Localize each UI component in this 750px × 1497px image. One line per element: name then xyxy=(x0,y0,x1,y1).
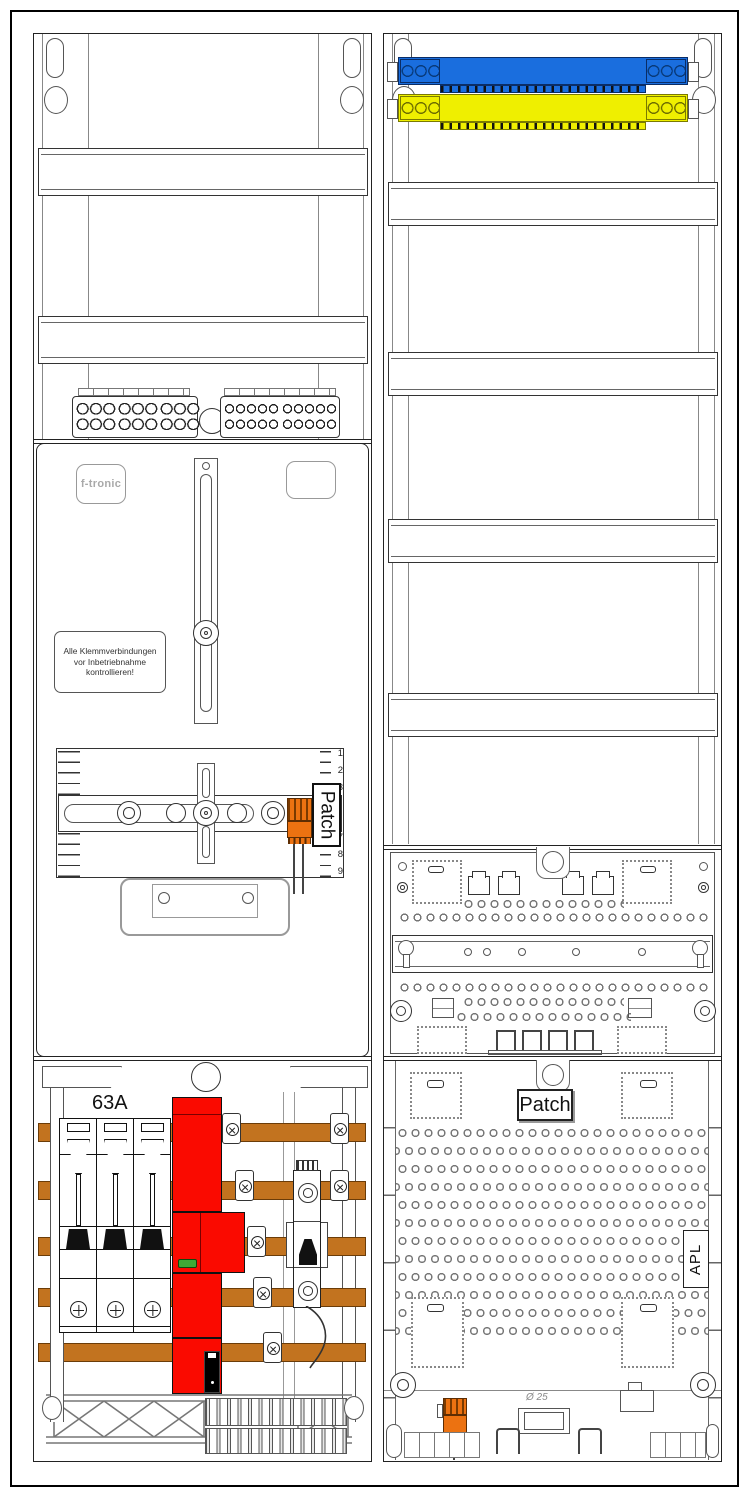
fuse-funnel xyxy=(67,1139,90,1174)
cable-clamp-icon xyxy=(522,1030,542,1050)
fuse-cap-black xyxy=(103,1229,127,1249)
patch-wire xyxy=(293,844,295,894)
mcb-screw-icon xyxy=(298,1281,318,1301)
corner-lock-icon xyxy=(690,1372,716,1398)
breaker-band-line xyxy=(173,1114,221,1115)
adjust-bar-screw-icon xyxy=(193,620,219,646)
panel-hole-icon xyxy=(398,862,407,871)
terminal-row xyxy=(205,1428,347,1454)
bar-line xyxy=(629,1008,651,1009)
left-edge-strip xyxy=(384,1061,396,1460)
terminal-holes-group xyxy=(76,401,116,432)
patch-label-meter: Patch xyxy=(316,791,338,840)
meter-cabinet-drawing: f-tronic Alle Klemmverbindungen vor Inbe… xyxy=(0,0,750,1497)
din-rail xyxy=(388,693,718,737)
brand-badge-label: f-tronic xyxy=(81,478,121,490)
fuse-stem xyxy=(113,1174,118,1226)
mcb-line xyxy=(294,1267,320,1268)
rj45-jack-icon xyxy=(562,876,584,895)
patch-connector-orange xyxy=(287,798,312,821)
fuse-unit xyxy=(59,1118,171,1333)
corner-blob xyxy=(706,1424,719,1458)
fuse-rating-label: 63A xyxy=(92,1092,128,1115)
terminal-holes-group xyxy=(282,401,337,432)
small-bracket xyxy=(620,1390,654,1412)
fuse-screw-icon xyxy=(107,1301,124,1318)
busbar-end-holes xyxy=(646,59,686,83)
terminal-tab-strip xyxy=(224,388,336,396)
din-rail xyxy=(38,148,368,196)
cross-vertical-slot xyxy=(202,826,210,858)
terminal-screw-icon xyxy=(334,1180,347,1193)
blank-badge xyxy=(286,461,336,499)
cable-clamp-icon xyxy=(548,1030,568,1050)
panel-lock-icon xyxy=(694,1000,716,1022)
rail-hole-icon xyxy=(483,948,491,956)
cable-clamp-icon xyxy=(496,1030,516,1050)
cable-clamp-icon xyxy=(574,1030,594,1050)
din-rail xyxy=(388,352,718,396)
right-edge-strip xyxy=(708,1061,721,1460)
rj45-jack-icon xyxy=(468,876,490,895)
adjust-bar-hole-icon xyxy=(202,462,210,470)
terminal-screw-icon xyxy=(267,1342,280,1355)
cross-screw-icon xyxy=(117,801,141,825)
bottom-trim-line xyxy=(384,1390,721,1391)
panel-mid-rail xyxy=(392,935,713,973)
rj45-jack-icon xyxy=(592,876,614,895)
cable-diameter-label: Ø 25 xyxy=(526,1392,548,1403)
mount-slot-icon xyxy=(46,38,64,78)
keyhole-stem xyxy=(697,954,704,968)
busbar-bracket xyxy=(387,62,398,82)
fuse-unit-line xyxy=(60,1249,170,1250)
busbar-terminal xyxy=(263,1332,282,1363)
patch-connector-teeth xyxy=(288,838,311,844)
panel-clip-icon xyxy=(542,851,564,873)
din-rail xyxy=(388,182,718,226)
terminal-screw-icon xyxy=(226,1123,239,1136)
busbar-bracket xyxy=(688,99,699,119)
warning-line-3: kontrollieren! xyxy=(86,667,134,678)
breaker-lever-notch xyxy=(208,1353,216,1358)
foot-hole-icon xyxy=(344,1396,364,1420)
brand-badge: f-tronic xyxy=(76,464,126,504)
terminal-holes-group xyxy=(224,401,279,432)
mcb-lever-black xyxy=(299,1239,317,1265)
cable-entry-icon xyxy=(578,1428,602,1454)
apl-label-box: APL xyxy=(683,1230,709,1288)
ruler-number: 9 xyxy=(331,866,343,877)
fuse-unit-line xyxy=(60,1226,170,1227)
busbar-end-holes xyxy=(400,59,440,83)
corner-brace xyxy=(42,1066,122,1088)
right-post-line xyxy=(318,34,319,440)
corner-brace xyxy=(290,1066,368,1088)
fuse-unit-line xyxy=(60,1278,170,1279)
cable-entry-panel xyxy=(650,1432,706,1458)
ruler-number: 2 xyxy=(331,765,343,776)
left-post-line xyxy=(88,34,89,440)
busbar-teeth xyxy=(440,85,646,93)
fuse-handle-icon xyxy=(141,1123,164,1132)
rail-hole-icon xyxy=(638,948,646,956)
panel-clip-icon xyxy=(542,1064,564,1086)
cross-center-screw-icon xyxy=(193,800,219,826)
patch-wire xyxy=(302,844,304,894)
cable-entry-icon xyxy=(496,1428,520,1454)
fuse-stem xyxy=(76,1174,81,1226)
mcb-line xyxy=(294,1221,320,1222)
fuse-funnel xyxy=(141,1139,164,1174)
panel-clip-icon xyxy=(191,1062,221,1092)
perforation-row xyxy=(455,1012,631,1022)
mcb-top-connector xyxy=(296,1160,318,1171)
terminal-screw-icon xyxy=(334,1123,347,1136)
busbar-terminal xyxy=(235,1170,254,1201)
left-post-line xyxy=(42,34,43,440)
fuse-unit-line xyxy=(60,1326,170,1327)
busbar-bracket xyxy=(387,99,398,119)
panel-hole-icon xyxy=(698,882,709,893)
corner-blob xyxy=(386,1424,402,1458)
terminal-holes-group xyxy=(118,401,158,432)
busbar-teeth xyxy=(440,122,646,130)
cross-hole-icon xyxy=(166,803,186,823)
section-divider xyxy=(34,1056,371,1061)
patch-connector-body xyxy=(287,821,312,838)
terminal-holes-group xyxy=(160,401,200,432)
cross-vertical-slot xyxy=(202,768,210,798)
mcb-body xyxy=(293,1170,321,1308)
rj45-jack-icon xyxy=(498,876,520,895)
rail-hole-icon xyxy=(572,948,580,956)
perforation-row xyxy=(462,997,624,1007)
patch-label-box-meter: Patch xyxy=(312,783,341,847)
cross-screw-icon xyxy=(261,801,285,825)
foot-hole-icon xyxy=(42,1396,62,1420)
fuse-stem xyxy=(150,1174,155,1226)
cutout-square xyxy=(417,1026,467,1054)
cable-bracket-inner xyxy=(524,1412,564,1430)
corner-lock-icon xyxy=(390,1372,416,1398)
fuse-handle-icon xyxy=(67,1123,90,1132)
bar-line xyxy=(433,1008,453,1009)
cutout-slot-icon xyxy=(427,1304,444,1312)
keyhole-stem xyxy=(403,954,410,968)
terminal-row xyxy=(205,1398,347,1426)
mount-hole-icon xyxy=(44,86,68,114)
busbar-terminal xyxy=(222,1113,241,1144)
terminal-screw-icon xyxy=(239,1180,252,1193)
terminal-tab-strip xyxy=(78,388,190,396)
mcb-wire xyxy=(300,1306,334,1370)
rail-hole-icon xyxy=(518,948,526,956)
breaker-lever-dot xyxy=(211,1381,214,1384)
ruler-ticks-left-bottom xyxy=(58,833,80,877)
warning-line-2: vor Inbetriebnahme xyxy=(74,657,146,668)
busbar-terminal xyxy=(253,1277,272,1308)
plate-hole-icon xyxy=(242,892,254,904)
mount-slot-icon xyxy=(343,38,361,78)
busbar-bracket xyxy=(688,62,699,82)
warning-label: Alle Klemmverbindungen vor Inbetriebnahm… xyxy=(54,631,166,693)
mcb-screw-icon xyxy=(298,1183,318,1203)
perforation-row xyxy=(462,899,624,909)
main-breaker-mid xyxy=(172,1212,245,1273)
cable-entry-panel xyxy=(404,1432,480,1458)
busbar-terminal xyxy=(330,1113,349,1144)
cross-bar-slot xyxy=(64,804,254,823)
cutout-slot-icon xyxy=(427,1080,444,1088)
cutout-slot-icon xyxy=(640,866,656,873)
mount-hole-icon xyxy=(340,86,364,114)
perforation-row xyxy=(398,982,708,993)
busbar-terminal xyxy=(330,1170,349,1201)
terminal-screw-icon xyxy=(257,1287,270,1300)
ruler-number: 1 xyxy=(331,748,343,759)
din-rail xyxy=(38,316,368,364)
rail-hole-icon xyxy=(464,948,472,956)
fuse-screw-icon xyxy=(70,1301,87,1318)
cutout-slot-icon xyxy=(428,866,444,873)
patch-label-box: Patch xyxy=(517,1089,573,1121)
side-bar-pair xyxy=(432,998,454,1018)
panel-hole-icon xyxy=(699,862,708,871)
plate-hole-icon xyxy=(158,892,170,904)
terminal-screw-icon xyxy=(251,1236,264,1249)
cutout-slot-icon xyxy=(640,1304,657,1312)
clamp-base xyxy=(488,1050,602,1055)
perforation-row xyxy=(398,912,708,923)
busbar-end-holes xyxy=(400,96,440,120)
apl-label: APL xyxy=(688,1243,705,1274)
bottom-connector-orange xyxy=(443,1398,467,1415)
connector-side-tab xyxy=(437,1404,443,1418)
fuse-cap-black xyxy=(140,1229,164,1249)
neutral-busbar-blue xyxy=(398,57,688,85)
patch-label: Patch xyxy=(519,1094,570,1117)
warning-line-1: Alle Klemmverbindungen xyxy=(63,646,156,657)
busbar-end-holes xyxy=(646,96,686,120)
pe-busbar-yellow xyxy=(398,94,688,122)
panel-lock-icon xyxy=(390,1000,412,1022)
cutout-slot-icon xyxy=(640,1080,657,1088)
ruler-ticks-left-top xyxy=(58,751,80,795)
panel-hole-icon xyxy=(397,882,408,893)
breaker-indicator-green xyxy=(178,1259,197,1268)
cutout-square xyxy=(617,1026,667,1054)
din-rail xyxy=(388,519,718,563)
fuse-screw-icon xyxy=(144,1301,161,1318)
fuse-funnel xyxy=(104,1139,127,1174)
main-breaker-low xyxy=(172,1273,222,1338)
breaker-divider-line xyxy=(200,1213,201,1272)
ruler-number: 8 xyxy=(331,849,343,860)
fuse-cap-black xyxy=(66,1229,90,1249)
busbar-terminal xyxy=(247,1226,266,1257)
side-bar-pair xyxy=(628,998,652,1018)
cross-hole-icon xyxy=(227,803,247,823)
main-breaker-foot xyxy=(172,1338,222,1394)
adjust-bar-slot xyxy=(200,474,212,712)
fuse-handle-icon xyxy=(104,1123,127,1132)
main-breaker-top xyxy=(172,1097,222,1212)
